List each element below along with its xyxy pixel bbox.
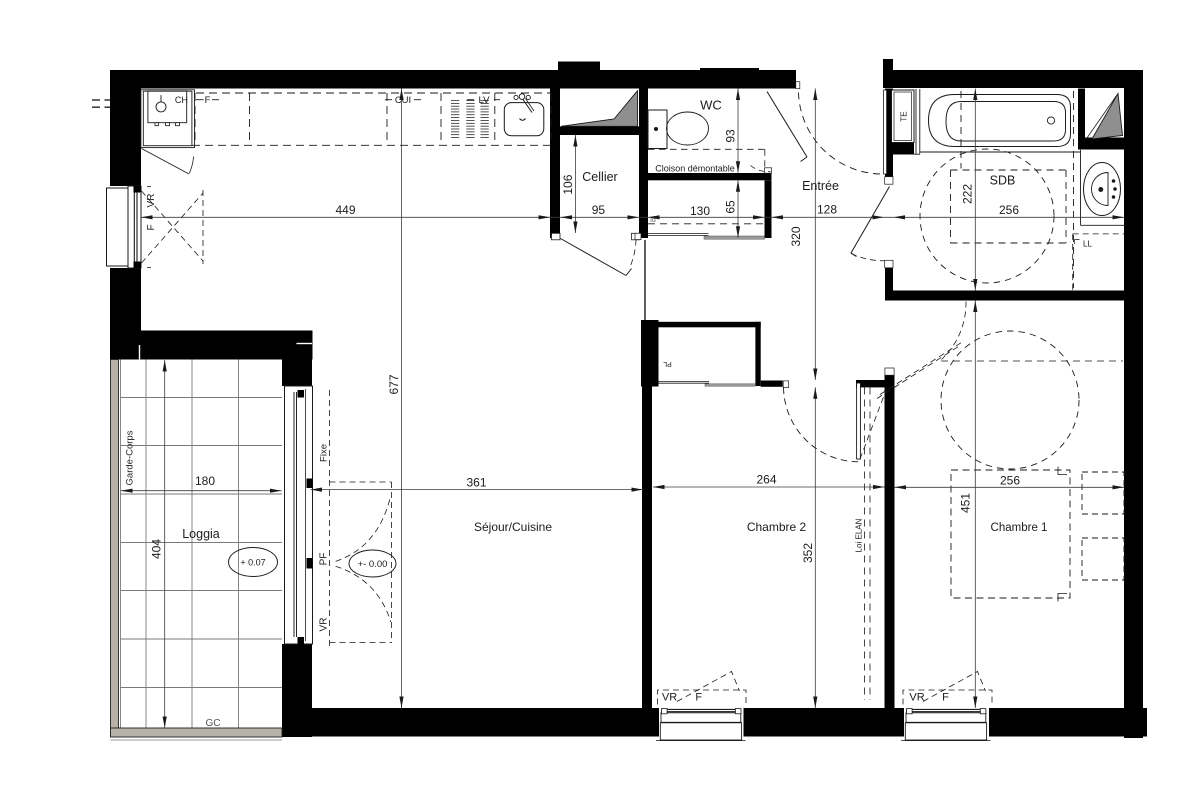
- svg-text:PL: PL: [663, 360, 672, 367]
- svg-text:Loggia: Loggia: [182, 527, 220, 541]
- svg-text:F: F: [695, 692, 702, 704]
- svg-text:Chambre 1: Chambre 1: [991, 522, 1048, 534]
- svg-text:264: 264: [756, 473, 776, 487]
- svg-text:65: 65: [724, 200, 738, 214]
- svg-text:Chambre 2: Chambre 2: [747, 520, 807, 534]
- svg-text:VR: VR: [662, 692, 677, 704]
- svg-text:Cellier: Cellier: [582, 170, 617, 184]
- svg-text:F: F: [146, 224, 157, 230]
- svg-text:VR: VR: [319, 618, 330, 632]
- svg-text:Garde-Corps: Garde-Corps: [125, 430, 136, 485]
- svg-text:Cloison démontable: Cloison démontable: [655, 163, 735, 173]
- svg-text:180: 180: [195, 474, 215, 488]
- svg-text:TE: TE: [900, 111, 909, 121]
- svg-text:VR: VR: [146, 194, 157, 208]
- svg-text:677: 677: [387, 374, 401, 394]
- svg-text:93: 93: [724, 129, 738, 143]
- svg-text:128: 128: [817, 203, 837, 217]
- svg-text:95: 95: [592, 203, 606, 217]
- svg-text:Loi ELAN: Loi ELAN: [855, 518, 864, 552]
- svg-text:404: 404: [150, 539, 164, 559]
- svg-text:352: 352: [801, 543, 815, 563]
- svg-text:VR: VR: [909, 692, 924, 704]
- svg-text:Entrée: Entrée: [802, 179, 839, 193]
- svg-text:Fixe: Fixe: [319, 444, 330, 462]
- svg-text:F: F: [942, 692, 949, 704]
- svg-text:LL: LL: [1083, 240, 1092, 249]
- svg-text:SDB: SDB: [990, 174, 1016, 188]
- svg-text:320: 320: [789, 226, 803, 246]
- svg-text:+ 0.07: + 0.07: [240, 558, 265, 568]
- svg-text:PF: PF: [319, 553, 330, 566]
- svg-text:+- 0.00: +- 0.00: [358, 559, 388, 570]
- svg-text:256: 256: [999, 203, 1019, 217]
- svg-text:256: 256: [1000, 473, 1020, 487]
- svg-text:CH: CH: [175, 95, 188, 105]
- svg-text:451: 451: [959, 493, 973, 513]
- svg-text:WC: WC: [700, 98, 722, 113]
- svg-text:449: 449: [335, 203, 355, 217]
- svg-text:Séjour/Cuisine: Séjour/Cuisine: [474, 520, 552, 534]
- svg-text:222: 222: [961, 184, 975, 204]
- svg-text:GC: GC: [206, 718, 221, 729]
- svg-text:106: 106: [561, 174, 575, 194]
- svg-text:F: F: [205, 95, 211, 106]
- svg-text:130: 130: [690, 204, 710, 218]
- svg-text:361: 361: [466, 476, 486, 490]
